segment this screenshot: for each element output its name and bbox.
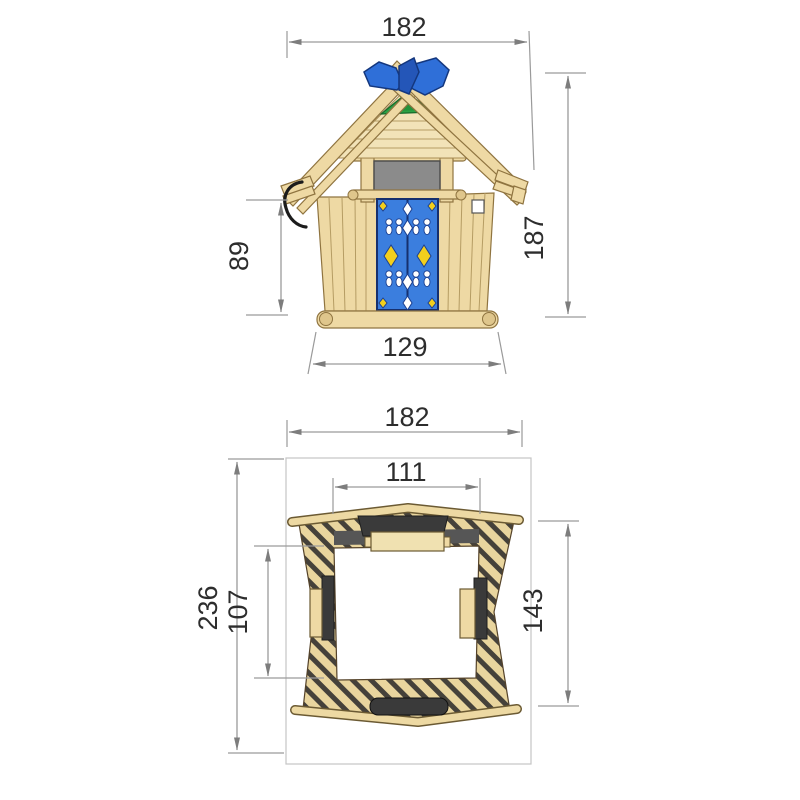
plan-door bbox=[370, 698, 448, 715]
roof-finial bbox=[364, 58, 449, 95]
drawing-canvas: 182 187 89 129 bbox=[0, 0, 800, 800]
dimension-plan-side-depth: 143 bbox=[518, 521, 579, 706]
dim-plan-side-depth-label: 143 bbox=[518, 588, 548, 633]
front-door bbox=[377, 199, 438, 310]
dim-plan-width-label: 182 bbox=[384, 402, 429, 432]
dimension-front-base-width: 129 bbox=[308, 332, 506, 374]
dim-front-height-label: 187 bbox=[519, 215, 549, 260]
sill-knob-left bbox=[348, 190, 358, 200]
dimension-plan-width: 182 bbox=[287, 402, 522, 447]
dimension-front-total-height: 187 bbox=[519, 73, 586, 317]
side-window bbox=[472, 200, 484, 213]
base-log bbox=[317, 311, 498, 328]
plan-front-window bbox=[358, 516, 450, 551]
dim-plan-opening-width-label: 111 bbox=[385, 457, 426, 487]
playhouse-dimension-drawing: 182 187 89 129 bbox=[0, 0, 800, 800]
dim-plan-inner-depth-label: 107 bbox=[223, 589, 253, 634]
plan-view: 182 111 236 107 143 bbox=[193, 402, 579, 764]
dim-front-eave-height-label: 89 bbox=[224, 241, 254, 271]
plan-house bbox=[292, 508, 519, 722]
left-wall bbox=[317, 197, 377, 311]
sill-knob-right bbox=[456, 190, 466, 200]
front-house bbox=[281, 58, 528, 328]
window-sill-bar bbox=[349, 190, 465, 199]
front-view: 182 187 89 129 bbox=[224, 12, 586, 374]
dim-front-width-label: 182 bbox=[381, 12, 426, 42]
dim-plan-total-depth-label: 236 bbox=[193, 585, 223, 630]
plan-right-window bbox=[460, 578, 487, 639]
dim-front-base-width-label: 129 bbox=[382, 332, 427, 362]
right-wall bbox=[438, 193, 494, 311]
dimension-front-eave-height: 89 bbox=[224, 200, 288, 315]
